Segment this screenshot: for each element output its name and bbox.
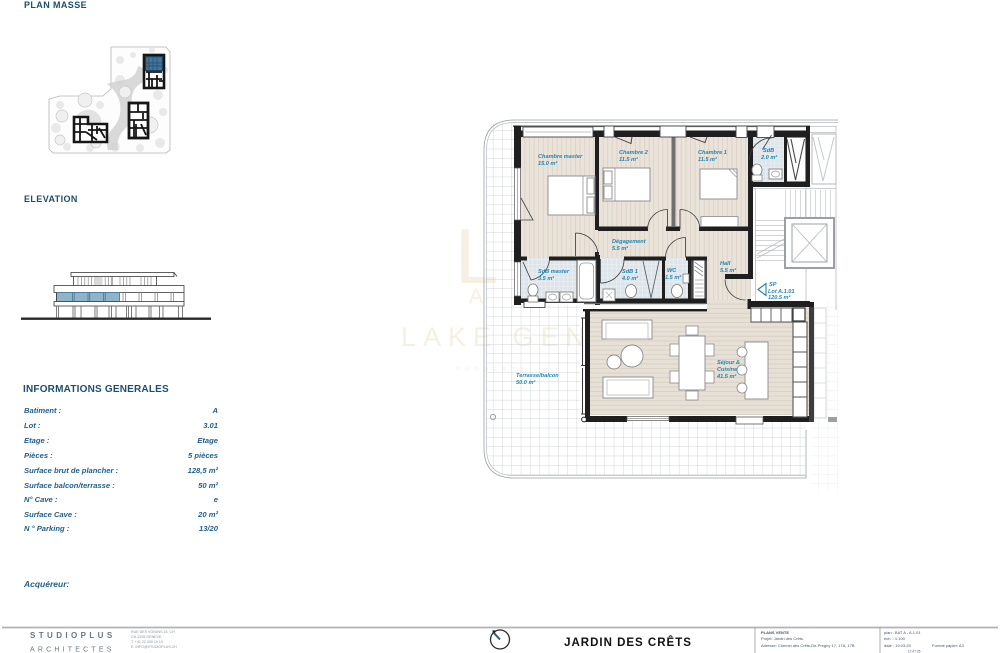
svg-text:Surface balcon/terrasse :: Surface balcon/terrasse : <box>24 481 115 490</box>
svg-text:INFORMATIONS GENERALES: INFORMATIONS GENERALES <box>23 384 169 395</box>
svg-text:5 pièces: 5 pièces <box>188 451 218 460</box>
svg-text:éch. : 1:100: éch. : 1:100 <box>884 636 906 641</box>
svg-text:Surface brut de plancher :: Surface brut de plancher : <box>24 466 119 475</box>
svg-text:120.5 m²: 120.5 m² <box>768 294 791 301</box>
svg-text:PLANS VENTE: PLANS VENTE <box>761 630 789 635</box>
svg-text:N ° Parking :: N ° Parking : <box>24 524 70 533</box>
svg-text:A: A <box>469 285 483 308</box>
svg-text:Etage :: Etage : <box>24 436 50 445</box>
svg-text:Dégagement: Dégagement <box>612 239 647 245</box>
svg-text:Terrasse/balcon: Terrasse/balcon <box>516 373 559 379</box>
svg-text:Projet: Jardin des Crêts.: Projet: Jardin des Crêts. <box>761 636 804 641</box>
svg-text:3.5 m²: 3.5 m² <box>538 275 554 282</box>
svg-text:ARCHITECTES: ARCHITECTES <box>30 647 115 653</box>
svg-text:Adresse: Chemin des Crêts-De-P: Adresse: Chemin des Crêts-De-Pregny 17, … <box>761 643 855 648</box>
svg-text:Pièces :: Pièces : <box>24 451 53 460</box>
svg-text:N° Cave :: N° Cave : <box>24 495 58 504</box>
svg-text:ELEVATION: ELEVATION <box>24 194 78 204</box>
svg-text:Etage: Etage <box>197 436 218 445</box>
svg-text:41.5 m²: 41.5 m² <box>716 373 736 380</box>
svg-text:Acquéreur:: Acquéreur: <box>23 579 70 589</box>
svg-text:3.01: 3.01 <box>203 421 218 430</box>
svg-text:15.0 m²: 15.0 m² <box>538 160 557 167</box>
svg-text:SdB 1: SdB 1 <box>622 269 638 275</box>
svg-text:11.5 m²: 11.5 m² <box>698 156 717 163</box>
svg-text:4.0 m²: 4.0 m² <box>621 275 638 282</box>
svg-text:Séjour &: Séjour & <box>717 360 740 366</box>
svg-text:SdB: SdB <box>763 148 774 154</box>
svg-text:50 m²: 50 m² <box>198 481 218 490</box>
svg-text:Format papier: A3: Format papier: A3 <box>932 643 965 648</box>
svg-text:plan : BAT A - A.1.01: plan : BAT A - A.1.01 <box>884 630 921 635</box>
svg-text:Hall: Hall <box>720 261 731 267</box>
svg-text:50.0 m²: 50.0 m² <box>516 379 535 386</box>
svg-text:1.5 m²: 1.5 m² <box>665 274 681 281</box>
svg-text:13/20: 13/20 <box>199 524 219 533</box>
svg-text:A: A <box>212 406 218 415</box>
svg-text:20 m²: 20 m² <box>197 510 218 519</box>
svg-text:Lot :: Lot : <box>24 421 41 430</box>
svg-text:2.0 m²: 2.0 m² <box>760 154 777 161</box>
svg-text:date : 19.03.25: date : 19.03.25 <box>884 643 911 648</box>
svg-text:RUE DES VOISINS 15, CH: RUE DES VOISINS 15, CH <box>131 630 175 634</box>
svg-text:JARDIN DES CRÊTS: JARDIN DES CRÊTS <box>564 636 692 649</box>
svg-text:5.5 m²: 5.5 m² <box>720 267 736 274</box>
svg-text:T. +41 22 300 10 10: T. +41 22 300 10 10 <box>131 640 163 644</box>
svg-text:WC: WC <box>667 268 677 274</box>
svg-text:11.5 m²: 11.5 m² <box>619 156 638 163</box>
svg-text:Chambre master: Chambre master <box>538 154 583 160</box>
svg-text:CH-1205 GENEVE: CH-1205 GENEVE <box>131 635 162 639</box>
svg-text:Chambre 1: Chambre 1 <box>698 150 727 156</box>
svg-text:Surface Cave :: Surface Cave : <box>24 510 77 519</box>
svg-text:5.5 m²: 5.5 m² <box>612 245 628 252</box>
svg-text:Cuisine: Cuisine <box>717 367 737 373</box>
svg-text:17.07.25: 17.07.25 <box>908 650 921 653</box>
svg-text:Chambre 2: Chambre 2 <box>619 150 649 156</box>
svg-text:STUDIOPLUS: STUDIOPLUS <box>30 631 116 640</box>
svg-text:SP: SP <box>769 282 777 288</box>
svg-text:128,5 m²: 128,5 m² <box>188 466 219 475</box>
svg-text:Batiment :: Batiment : <box>24 406 62 415</box>
svg-text:PLAN MASSE: PLAN MASSE <box>24 0 87 10</box>
svg-text:E. INFO@STUDIOPLUS.CH: E. INFO@STUDIOPLUS.CH <box>131 645 177 649</box>
svg-text:SdB master: SdB master <box>538 269 570 275</box>
